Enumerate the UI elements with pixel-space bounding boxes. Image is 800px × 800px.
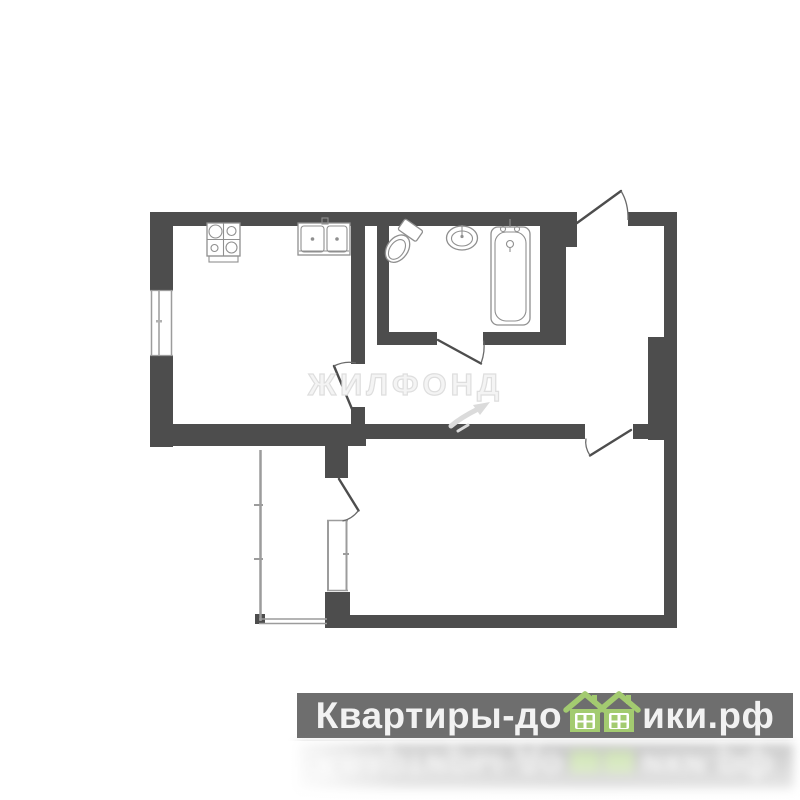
wall <box>325 615 677 628</box>
kitchen-window <box>149 290 174 356</box>
balcony-door <box>339 479 359 521</box>
reflection-fade <box>285 741 800 800</box>
wall <box>377 226 389 332</box>
wall <box>664 440 677 628</box>
wall <box>648 337 677 440</box>
wall <box>377 332 437 345</box>
kitchen-sink-icon <box>298 218 350 255</box>
walls <box>150 212 677 628</box>
living-room-door <box>586 430 631 456</box>
bathroom-door <box>438 340 484 364</box>
floor-plan-image: ЖИЛФОНД Квартиры-до <box>0 0 800 800</box>
wall <box>150 424 366 446</box>
stove-icon <box>207 223 240 262</box>
wall <box>150 212 173 290</box>
entry-door <box>577 191 628 223</box>
brand-text-left: Квартиры-до <box>316 693 563 738</box>
brand-banner: Квартиры-до <box>297 693 793 738</box>
bathtub-icon <box>491 219 530 325</box>
watermark-text: ЖИЛФОНД <box>308 367 503 403</box>
houses-icon <box>563 690 641 744</box>
wall <box>664 212 677 337</box>
wall <box>366 424 585 439</box>
brand-text-right: ики.рф <box>642 693 774 738</box>
washbasin-icon <box>447 225 478 250</box>
wall <box>351 226 365 364</box>
wall <box>566 226 577 247</box>
wall <box>325 446 348 478</box>
wall <box>483 332 540 345</box>
wall <box>351 407 365 425</box>
wall <box>325 592 350 618</box>
wall <box>540 226 566 345</box>
